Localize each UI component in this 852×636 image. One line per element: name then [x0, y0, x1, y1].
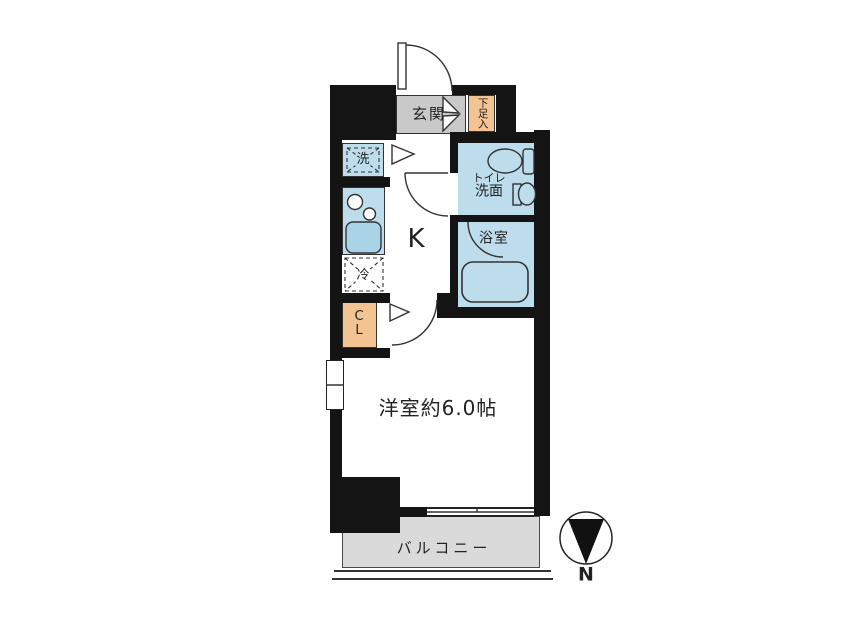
toilet-label: トイレ 洗面 [473, 173, 506, 200]
fridge-label: 冷 [355, 269, 370, 283]
wall-toilet-left [450, 143, 458, 173]
wall-bottom-segment [400, 507, 427, 517]
wall-bottom-block [330, 477, 400, 533]
entrance-door-leaf [398, 43, 406, 89]
wall-washer-stub [330, 177, 390, 187]
balcony-label: バルコニー [397, 540, 492, 556]
left-window [326, 360, 344, 410]
wall-top-left-block [330, 85, 396, 140]
closet-label: C L [354, 310, 363, 338]
entrance-label: 玄関 [412, 106, 446, 122]
wall-under-closet [330, 348, 390, 358]
wall-toilet-bath [450, 215, 540, 222]
kitchen-counter [342, 187, 385, 255]
north-label: N [578, 565, 594, 586]
wall-top-right-segment [452, 85, 516, 95]
entrance-door-arc [406, 45, 452, 91]
wall-right-column [534, 130, 550, 516]
shoe-cabinet-label: 下足入 [476, 97, 487, 129]
closet-label-line1: C [354, 310, 363, 324]
wall-shoebox-right [496, 95, 516, 132]
wall-left-upper [330, 140, 342, 360]
bathroom-label: 浴室 [479, 231, 509, 246]
compass-icon [560, 512, 612, 564]
toilet-label-line2: 洗面 [473, 184, 506, 199]
washer-label: 洗 [355, 153, 370, 167]
kitchen-label: K [407, 225, 424, 253]
floor-plan-image: 玄関 下足入 洗 トイレ 洗面 浴室 K 冷 C L 洋室約6.0帖 バルコニー… [0, 0, 852, 636]
wall-bath-left [450, 222, 458, 307]
wall-left-mid [330, 410, 342, 477]
main-room-label: 洋室約6.0帖 [379, 398, 498, 420]
wall-fridge-stub [330, 293, 390, 303]
kitchen-area [385, 143, 450, 293]
closet-label-line2: L [354, 324, 363, 338]
balcony-sliding-window [427, 507, 534, 517]
